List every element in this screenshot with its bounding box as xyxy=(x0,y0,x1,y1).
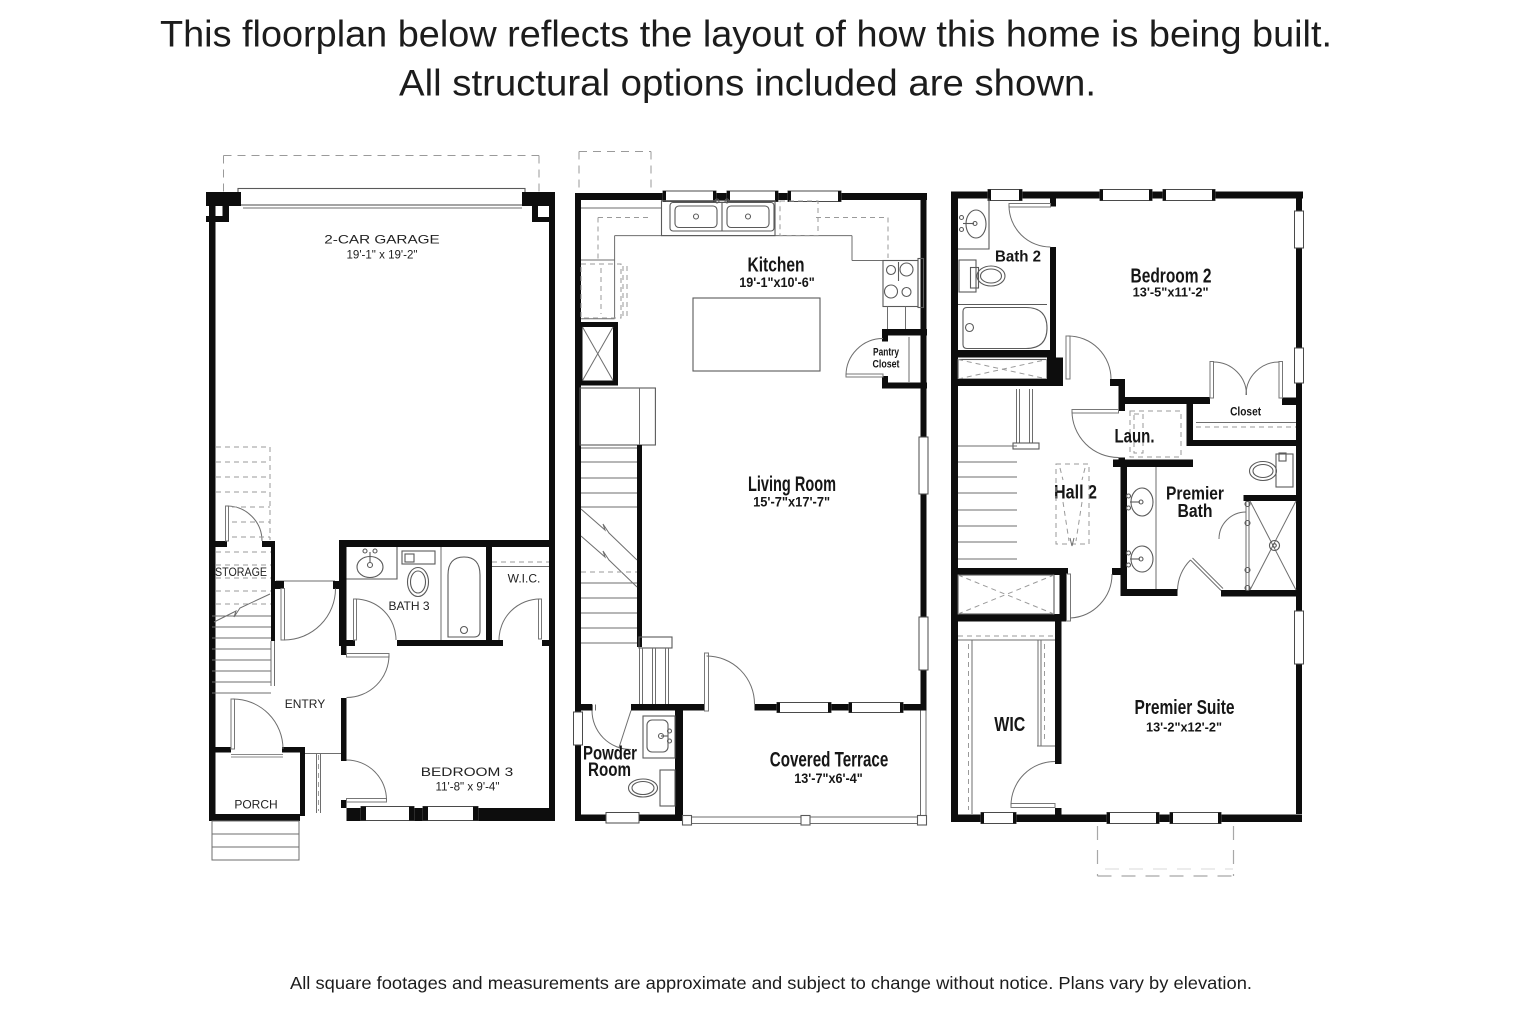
svg-text:15'-7"x17'-7": 15'-7"x17'-7" xyxy=(753,495,830,510)
svg-text:All structural options include: All structural options included are show… xyxy=(399,63,1096,104)
svg-text:13'-5"x11'-2": 13'-5"x11'-2" xyxy=(1133,285,1209,300)
svg-text:Room: Room xyxy=(588,759,631,781)
svg-text:All square footages and measur: All square footages and measurements are… xyxy=(290,973,1252,993)
svg-text:Bath: Bath xyxy=(1178,501,1213,521)
svg-text:This floorplan below reflects: This floorplan below reflects the layout… xyxy=(160,14,1332,55)
svg-text:Covered Terrace: Covered Terrace xyxy=(770,749,889,772)
svg-text:Premier Suite: Premier Suite xyxy=(1135,697,1235,719)
svg-text:Living Room: Living Room xyxy=(748,473,836,496)
svg-text:W.I.C.: W.I.C. xyxy=(508,572,541,586)
svg-text:BEDROOM 3: BEDROOM 3 xyxy=(421,765,514,779)
svg-text:STORAGE: STORAGE xyxy=(215,565,267,579)
svg-text:Hall 2: Hall 2 xyxy=(1054,483,1097,504)
svg-text:Kitchen: Kitchen xyxy=(748,254,805,277)
svg-text:13'-2"x12'-2": 13'-2"x12'-2" xyxy=(1146,720,1222,735)
svg-text:Laun.: Laun. xyxy=(1115,427,1155,448)
svg-text:Closet: Closet xyxy=(1230,405,1261,419)
svg-text:Bath 2: Bath 2 xyxy=(995,249,1041,266)
svg-text:13'-7"x6'-4": 13'-7"x6'-4" xyxy=(794,770,863,786)
svg-text:19'-1" x 19'-2": 19'-1" x 19'-2" xyxy=(347,248,418,262)
svg-text:Pantry: Pantry xyxy=(873,347,900,359)
svg-text:PORCH: PORCH xyxy=(234,798,277,812)
svg-text:11'-8" x 9'-4": 11'-8" x 9'-4" xyxy=(436,780,500,794)
svg-text:19'-1"x10'-6": 19'-1"x10'-6" xyxy=(739,275,815,290)
svg-text:ENTRY: ENTRY xyxy=(285,697,325,711)
svg-text:Closet: Closet xyxy=(873,359,900,371)
svg-text:2-CAR GARAGE: 2-CAR GARAGE xyxy=(324,233,440,247)
svg-text:WIC: WIC xyxy=(994,714,1025,736)
svg-text:BATH 3: BATH 3 xyxy=(388,599,429,613)
